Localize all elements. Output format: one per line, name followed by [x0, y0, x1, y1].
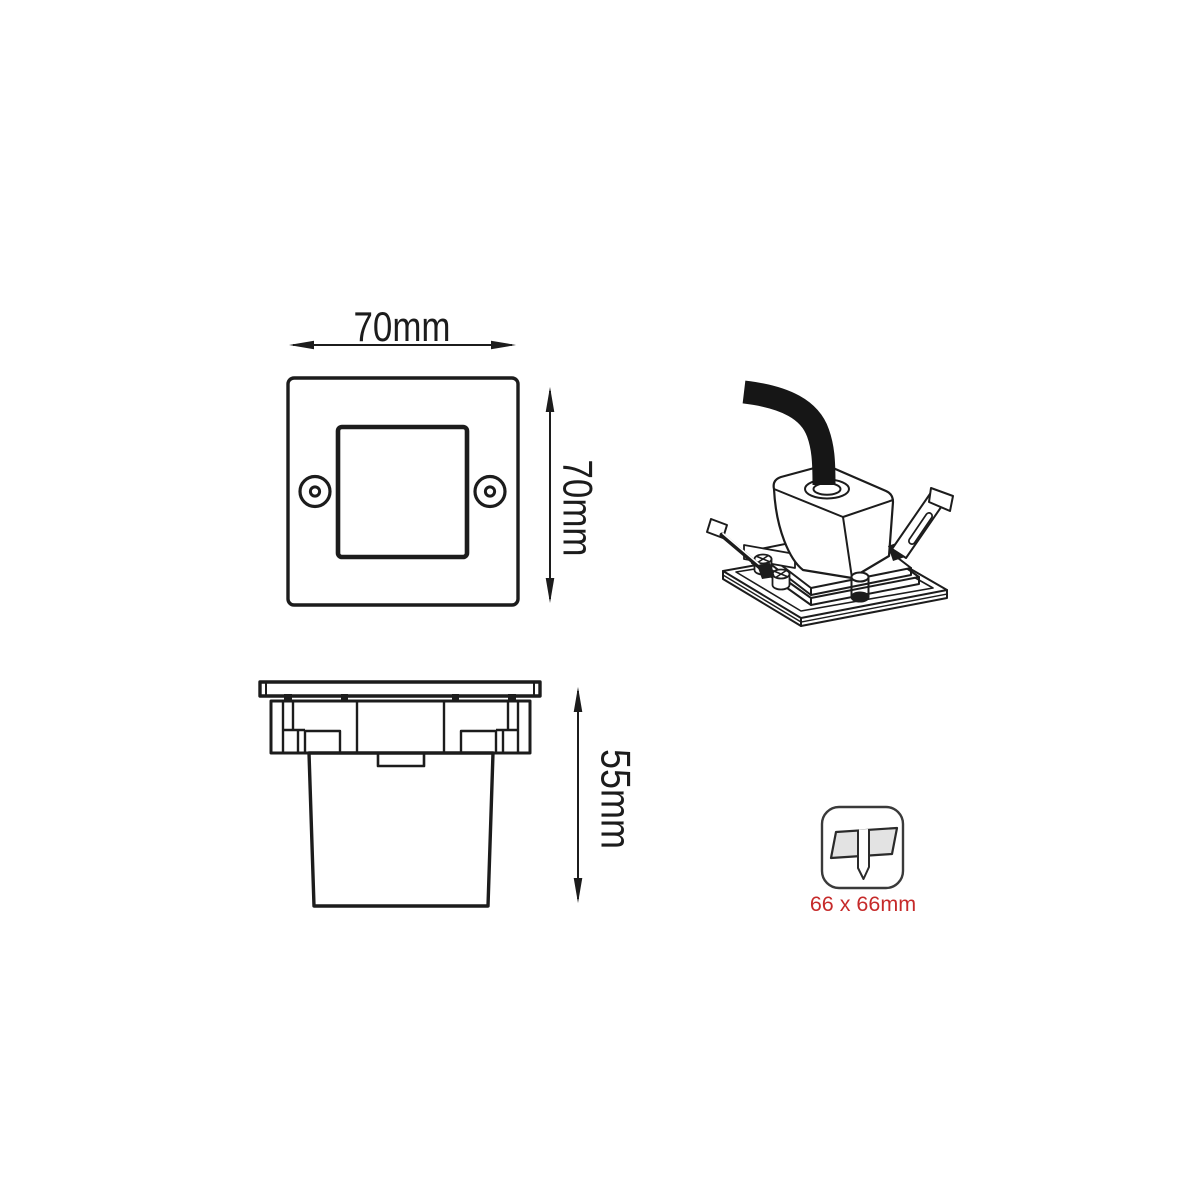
arrow-up-icon — [574, 687, 583, 712]
depth-dimension-label: 55mm — [593, 749, 640, 849]
side-bezel-plate — [260, 682, 540, 696]
width-dimension-label: 70mm — [354, 303, 451, 350]
side-mounting-bracket — [271, 701, 530, 753]
height-dimension: 70mm — [546, 387, 602, 603]
depth-dimension: 55mm — [574, 687, 640, 903]
drawing-canvas: 70mm 70mm — [0, 0, 1200, 1200]
cutout-size-label: 66 x 66mm — [810, 892, 916, 916]
front-bezel — [288, 378, 518, 605]
arrow-up-icon — [546, 387, 555, 412]
arrow-down-icon — [546, 578, 555, 603]
arrow-down-icon — [574, 878, 583, 903]
front-screw-left-icon — [300, 477, 330, 507]
side-view — [260, 682, 540, 906]
width-dimension: 70mm — [289, 303, 516, 350]
side-housing-body — [309, 753, 493, 906]
cutout-icon — [822, 807, 903, 888]
arrow-right-icon — [491, 341, 516, 350]
front-view — [288, 378, 518, 605]
perspective-view — [707, 392, 953, 626]
front-screw-right-icon — [475, 477, 505, 507]
spring-clip-right — [888, 488, 953, 561]
cutout-arrow-icon — [858, 829, 869, 879]
front-lens — [338, 427, 467, 557]
technical-drawing-page: 70mm 70mm — [0, 0, 1200, 1200]
terminal-screw-icon — [773, 570, 790, 590]
arrow-left-icon — [289, 341, 314, 350]
height-dimension-label: 70mm — [555, 460, 602, 557]
